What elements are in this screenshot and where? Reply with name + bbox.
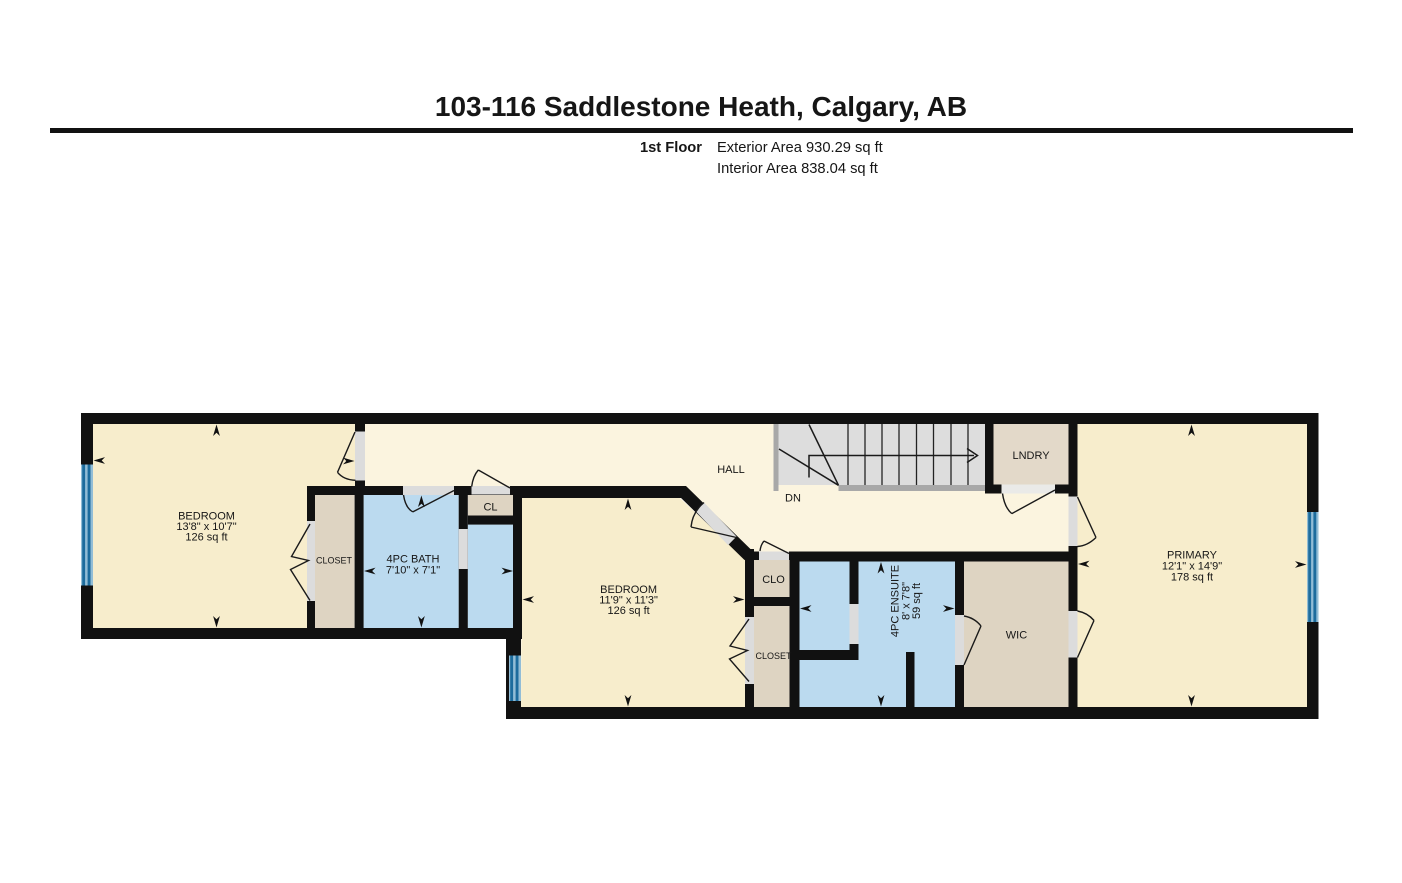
svg-text:HALL: HALL (717, 464, 745, 476)
svg-text:LNDRY: LNDRY (1012, 450, 1050, 462)
svg-text:WIC: WIC (1006, 630, 1027, 642)
svg-text:CLO: CLO (762, 574, 785, 586)
svg-text:59 sq ft: 59 sq ft (911, 583, 923, 619)
svg-text:126 sq ft: 126 sq ft (185, 532, 227, 544)
svg-text:CL: CL (483, 502, 497, 514)
svg-text:CLOSET: CLOSET (316, 556, 353, 566)
svg-text:7'10" x 7'1": 7'10" x 7'1" (386, 564, 440, 576)
svg-text:126 sq ft: 126 sq ft (607, 605, 649, 617)
svg-text:CLOSET: CLOSET (755, 651, 792, 661)
svg-text:178 sq ft: 178 sq ft (1171, 571, 1213, 583)
svg-text:PRIMARY: PRIMARY (1167, 549, 1218, 561)
svg-text:DN: DN (785, 493, 801, 505)
